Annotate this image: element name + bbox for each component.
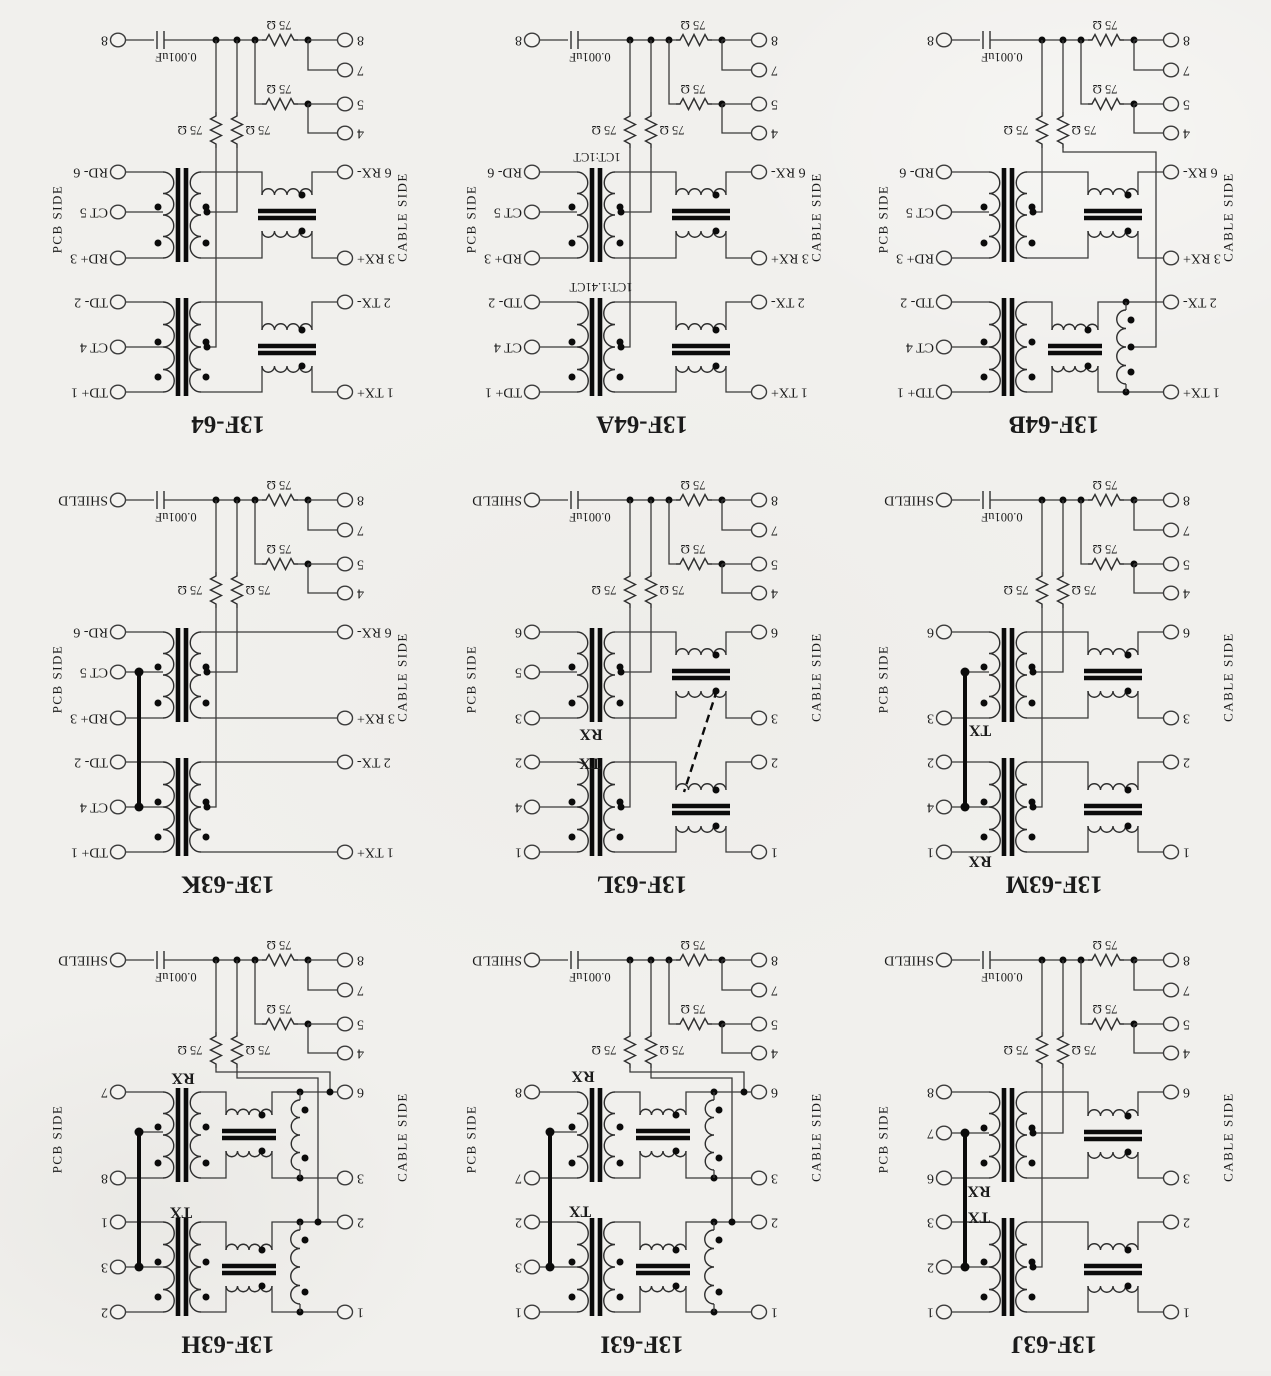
choke-symbol [201,172,338,258]
pin-circle [111,755,126,769]
resistor-symbol [676,35,712,46]
termination-network: 80.001uF75 Ω8775 Ω5475 Ω75 Ω [515,18,778,148]
choke-symbol [615,172,752,258]
resistor-symbol [625,1032,636,1068]
part-number: 13F-63H [181,1331,275,1358]
pin-circle [111,1260,126,1274]
part-number: 13F-64A [596,411,688,438]
pin-circle [1164,1215,1179,1229]
pin-circle [752,755,767,769]
cable-pin-label: 6 [771,1085,778,1100]
pin-circle [1164,586,1179,600]
resistor-value: 75 Ω [660,583,685,597]
resistor-value: 75 Ω [660,1043,685,1057]
winding-label: RX [171,1070,195,1087]
pin-circle [1164,1017,1179,1031]
pin-circle [752,586,767,600]
pin-circle [111,385,126,399]
schematic-13f-63k: 13F-63KPCB SIDECABLE SIDESHIELD0.001uF75… [50,478,410,898]
resistor-value: 75 Ω [1004,1043,1029,1057]
cable-pin-label: 1 [1183,1305,1190,1320]
resistor-symbol [646,112,657,148]
pin-circle [937,1215,952,1229]
winding-label: TX [169,1204,192,1221]
cable-pin-label: 7 [771,523,778,538]
resistor-symbol [1088,99,1124,110]
cable-pin-label: 4 [1183,126,1190,141]
resistor-symbol [1058,572,1069,608]
shield-pin-label: SHIELD [884,953,934,968]
pin-circle [338,1215,353,1229]
part-number: 13F-63I [600,1331,683,1358]
pcb-pin-label: 4 [515,800,522,815]
pin-circle [338,251,353,265]
shield-pin [111,953,126,967]
pin-circle [338,586,353,600]
pcb-side-label: PCB SIDE [50,185,65,254]
pin-circle [525,385,540,399]
cable-pins: 6321 [752,1085,779,1320]
pin-circle [1164,385,1179,399]
resistor-symbol [232,1032,243,1068]
cable-pin-label: 3 RX+ [357,251,395,266]
pcb-pin-label: TD+ 1 [71,385,108,400]
resistor-value: 75 Ω [592,583,617,597]
pin-circle [752,126,767,140]
autotransformer-symbol [705,1089,722,1182]
cable-pin-label: 3 RX+ [357,711,395,726]
resistor-symbol [676,955,712,966]
pin-circle [1164,625,1179,639]
pin-circle [752,711,767,725]
termination-network: SHIELD0.001uF75 Ω8775 Ω5475 Ω75 Ω [884,938,1190,1068]
cable-pins: 6 RX-3 RX+2 TX-1 TX+ [1164,165,1221,400]
choke-symbol [1027,762,1164,852]
pcb-side-label: PCB SIDE [464,645,479,714]
pcb-pins: RD- 6CT 5RD+ 3TD- 2CT 4TD+ 1 [70,625,125,860]
cable-pin-label: 8 [357,33,364,48]
pin-circle [752,251,767,265]
pin-circle [525,1215,540,1229]
cable-pin-label: 5 [1183,557,1190,572]
resistor-value: 75 Ω [681,478,706,492]
pin-circle [752,385,767,399]
cable-pin-label: 2 [1183,1215,1190,1230]
resistor-symbol [676,559,712,570]
cable-pin-label: 3 RX+ [771,251,809,266]
pcb-pin-label: TD+ 1 [71,845,108,860]
autotransformer-symbol [291,1089,308,1182]
cable-side-label: CABLE SIDE [809,1092,824,1182]
cable-pin-label: 4 [1183,586,1190,601]
pcb-pin-label: 2 [927,755,934,770]
pcb-pin-label: TD+ 1 [897,385,934,400]
shield-pin-label: SHIELD [58,493,108,508]
winding-label: RX [579,726,603,743]
winding-label: TX [568,1203,591,1220]
winding-label: TX [968,722,991,739]
pin-circle [1164,983,1179,997]
cable-pin-label: 5 [357,557,364,572]
cable-pin-label: 1 [771,1305,778,1320]
termination-network: SHIELD0.001uF75 Ω8775 Ω5475 Ω75 Ω [884,478,1190,608]
resistor-symbol [1037,112,1048,148]
pin-circle [1164,126,1179,140]
resistor-value: 75 Ω [267,1002,292,1016]
shield-pin-label: SHIELD [58,953,108,968]
resistor-value: 75 Ω [681,542,706,556]
pcb-pin-label: CT 5 [80,205,108,220]
winding-label: RX [967,1183,991,1200]
pin-circle [937,1171,952,1185]
autotransformer-symbol [291,1219,309,1316]
resistor-symbol [262,1019,298,1030]
cable-pin-label: 1 TX+ [771,385,808,400]
pcb-side-label: PCB SIDE [464,1105,479,1174]
choke-symbol [1027,172,1164,258]
pcb-pins: 78132 [101,1085,126,1320]
pin-circle [111,1171,126,1185]
pin-circle [937,800,952,814]
capacitor-value: 0.001uF [981,50,1022,64]
resistor-value: 75 Ω [267,82,292,96]
termination-network: SHIELD0.001uF75 Ω8775 Ω5475 Ω75 Ω [472,478,778,608]
pin-circle [111,1215,126,1229]
choke-symbol [615,302,752,392]
resistor-value: 75 Ω [267,18,292,32]
winding-label: TX [967,1209,990,1226]
winding-label: RX [968,853,992,870]
pin-circle [338,63,353,77]
cable-pin-label: 5 [357,97,364,112]
cable-pin-label: 6 RX- [771,165,806,180]
pcb-pin-label: CT 5 [80,665,108,680]
pcb-pin-label: 3 [515,1260,522,1275]
pcb-pin-label: RD- 6 [487,165,522,180]
pcb-pin-label: RD- 6 [899,165,934,180]
pin-circle [1164,1171,1179,1185]
pin-circle [525,165,540,179]
pin-circle [1164,493,1179,507]
pcb-pin-label: 6 [927,1171,934,1186]
pcb-pins: RD- 6CT 5RD+ 3TD- 2CT 4TD+ 1 [70,165,125,400]
transformer-symbol [981,168,1036,262]
pin-circle [525,665,540,679]
pin-circle [338,625,353,639]
resistor-symbol [676,495,712,506]
pin-circle [338,1046,353,1060]
pin-circle [752,493,767,507]
schematic-13f-63i: 13F-63IPCB SIDECABLE SIDESHIELD0.001uF75… [464,938,824,1358]
resistor-symbol [211,572,222,608]
cable-pin-label: 8 [771,33,778,48]
resistor-symbol [1058,1032,1069,1068]
pin-circle [525,1085,540,1099]
dashed-link [684,690,717,792]
pcb-pin-label: RD+ 3 [70,711,108,726]
pcb-pin-label: CT 5 [906,205,934,220]
pcb-pin-label: 8 [515,1085,522,1100]
cable-pin-label: 6 RX- [357,165,392,180]
pin-circle [752,165,767,179]
pcb-pin-label: 1 [515,1305,522,1320]
pin-circle [338,557,353,571]
pcb-pin-label: 8 [927,1085,934,1100]
pin-circle [525,1260,540,1274]
resistor-value: 75 Ω [267,478,292,492]
pin-circle [1164,1085,1179,1099]
cable-pin-label: 2 TX- [357,755,391,770]
pcb-pin-label: 7 [101,1085,108,1100]
cable-pin-label: 5 [771,557,778,572]
pcb-pin-label: 4 [927,800,934,815]
pin-circle [1164,33,1179,47]
cable-pin-label: 6 [1183,1085,1190,1100]
pcb-pin-label: 8 [101,1171,108,1186]
cable-pin-label: 1 TX+ [1183,385,1220,400]
cable-pin-label: 7 [771,63,778,78]
winding-label: RX [571,1068,595,1085]
capacitor-value: 0.001uF [155,970,196,984]
pin-circle [937,625,952,639]
datasheet-page: 13F-64PCB SIDECABLE SIDE80.001uF75 Ω8775… [0,0,1271,1371]
pin-circle [752,953,767,967]
resistor-value: 75 Ω [1004,583,1029,597]
pcb-side-label: PCB SIDE [876,1105,891,1174]
cable-pin-label: 4 [357,586,364,601]
pin-circle [525,1171,540,1185]
pin-circle [525,625,540,639]
capacitor-value: 0.001uF [155,510,196,524]
cable-pin-label: 7 [1183,523,1190,538]
pin-circle [525,845,540,859]
pin-circle [937,755,952,769]
schematic-13f-64b: 13F-64BPCB SIDECABLE SIDE80.001uF75 Ω877… [876,18,1236,438]
choke-symbol [201,302,338,392]
cable-pin-label: 2 TX- [771,295,805,310]
cable-pin-label: 7 [357,983,364,998]
resistor-symbol [262,35,298,46]
cable-side-label: CABLE SIDE [395,172,410,262]
part-number: 13F-63L [597,871,687,898]
pin-circle [338,983,353,997]
resistor-symbol [1037,572,1048,608]
pin-circle [525,205,540,219]
resistor-value: 75 Ω [1072,123,1097,137]
pin-circle [338,523,353,537]
cable-pin-label: 5 [1183,97,1190,112]
resistor-value: 75 Ω [660,123,685,137]
resistor-value: 75 Ω [267,938,292,952]
part-number: 13F-64 [191,411,265,438]
pin-circle [937,340,952,354]
pin-circle [752,983,767,997]
transformer-symbol [569,168,624,262]
pin-circle [111,711,126,725]
pcb-pin-label: 6 [927,625,934,640]
pin-circle [752,1046,767,1060]
cable-pin-label: 3 [357,1171,364,1186]
cable-pin-label: 2 TX- [357,295,391,310]
resistor-value: 75 Ω [1093,82,1118,96]
pin-circle [752,1171,767,1185]
pcb-pin-label: RD- 6 [73,165,108,180]
pcb-pin-label: 2 [927,1260,934,1275]
pin-circle [937,711,952,725]
pcb-pin-label: CT 4 [80,340,108,355]
resistor-symbol [646,572,657,608]
pin-circle [525,295,540,309]
pin-circle [937,295,952,309]
cable-pin-label: 4 [1183,1046,1190,1061]
choke-symbol [201,1222,338,1312]
pin-circle [937,1085,952,1099]
pin-circle [111,205,126,219]
pcb-pins: 87231 [515,1085,540,1320]
cable-pin-label: 5 [357,1017,364,1032]
cable-pin-label: 8 [357,493,364,508]
pin-circle [338,755,353,769]
cable-pin-label: 8 [1183,33,1190,48]
part-number: 13F-64B [1009,411,1099,438]
pin-circle [338,493,353,507]
transformer-symbol [981,1088,1036,1182]
cable-pin-label: 2 [771,1215,778,1230]
pin-circle [937,1305,952,1319]
pin-circle [752,1017,767,1031]
cable-pin-label: 2 [771,755,778,770]
transformer-symbol [155,1088,210,1182]
resistor-symbol [1058,112,1069,148]
resistor-value: 75 Ω [681,82,706,96]
resistor-value: 75 Ω [178,123,203,137]
cable-pin-label: 6 [357,1085,364,1100]
pin-circle [338,1305,353,1319]
transformer-symbol [155,628,210,722]
shield-pin [111,493,126,507]
pin-circle [752,63,767,77]
pin-circle [937,845,952,859]
cable-pin-label: 3 RX+ [1183,251,1221,266]
pin-circle [338,711,353,725]
resistor-value: 75 Ω [246,123,271,137]
cable-pin-label: 1 TX+ [357,385,394,400]
pcb-pin-label: 3 [927,711,934,726]
cable-pin-label: 8 [1183,493,1190,508]
capacitor-value: 0.001uF [981,510,1022,524]
pcb-pin-label: 2 [101,1305,108,1320]
pin-circle [111,1305,126,1319]
pcb-pin-label: TD- 2 [74,295,108,310]
shield-pin-label: SHIELD [472,493,522,508]
pin-circle [338,385,353,399]
pin-circle [111,165,126,179]
resistor-symbol [1088,495,1124,506]
pcb-pins: 876321 [927,1085,952,1320]
cable-pin-label: 4 [771,1046,778,1061]
cable-side-label: CABLE SIDE [1221,1092,1236,1182]
pin-circle [338,33,353,47]
cable-pin-label: 3 [1183,1171,1190,1186]
capacitor-value: 0.001uF [569,510,610,524]
winding-label: 1CT:1.41CT [569,280,632,294]
cable-pin-label: 7 [357,523,364,538]
resistor-value: 75 Ω [246,1043,271,1057]
capacitor-value: 0.001uF [569,50,610,64]
pin-circle [111,295,126,309]
part-number: 13F-63M [1005,871,1102,898]
cable-pin-label: 6 RX- [357,625,392,640]
pin-circle [752,97,767,111]
cable-pins: 6321 [752,625,779,860]
winding-label: TX [578,755,601,772]
pcb-pin-label: 3 [927,1215,934,1230]
pin-circle [1164,845,1179,859]
shield-pin-label: 8 [101,33,108,48]
pin-circle [752,523,767,537]
cable-pin-label: 2 [1183,755,1190,770]
pin-circle [525,755,540,769]
winding-label: 1CT:1CT [573,150,621,164]
termination-network: 80.001uF75 Ω8775 Ω5475 Ω75 Ω [101,18,364,148]
pin-circle [1164,711,1179,725]
part-number: 13F-63J [1011,1331,1097,1358]
cable-pins: 6 RX-3 RX+2 TX-1 TX+ [338,165,395,400]
pcb-side-label: PCB SIDE [876,645,891,714]
transformer-symbol [981,628,1036,722]
resistor-symbol [676,99,712,110]
cable-pin-label: 5 [771,97,778,112]
cable-pin-label: 7 [1183,983,1190,998]
pcb-pin-label: 7 [927,1126,934,1141]
pcb-pin-label: CT 4 [80,800,108,815]
cable-pins: 6 RX-3 RX+2 TX-1 TX+ [752,165,809,400]
pin-circle [1164,295,1179,309]
pin-circle [111,340,126,354]
pin-circle [1164,523,1179,537]
pcb-pins: 653241 [515,625,540,860]
resistor-value: 75 Ω [246,583,271,597]
pcb-pin-label: TD- 2 [74,755,108,770]
pin-circle [338,1085,353,1099]
pin-circle [111,800,126,814]
schematic-13f-63h: 13F-63HPCB SIDECABLE SIDESHIELD0.001uF75… [50,938,410,1358]
pin-circle [338,165,353,179]
pcb-pin-label: TD- 2 [488,295,522,310]
resistor-symbol [211,112,222,148]
choke-symbol [201,1092,338,1178]
cable-pin-label: 1 TX+ [357,845,394,860]
pin-circle [937,251,952,265]
cable-pin-label: 8 [357,953,364,968]
pin-circle [937,205,952,219]
pin-circle [111,845,126,859]
choke-symbol [1027,632,1164,718]
pcb-pin-label: 1 [101,1215,108,1230]
resistor-symbol [1088,35,1124,46]
resistor-value: 75 Ω [1004,123,1029,137]
pin-circle [525,1305,540,1319]
cable-pin-label: 7 [771,983,778,998]
pin-circle [937,1126,952,1140]
pcb-pin-label: RD- 6 [73,625,108,640]
cable-pin-label: 3 [771,711,778,726]
pin-circle [1164,63,1179,77]
pcb-pin-label: RD+ 3 [896,251,934,266]
cable-pin-label: 8 [1183,953,1190,968]
resistor-value: 75 Ω [592,1043,617,1057]
resistor-value: 75 Ω [681,18,706,32]
